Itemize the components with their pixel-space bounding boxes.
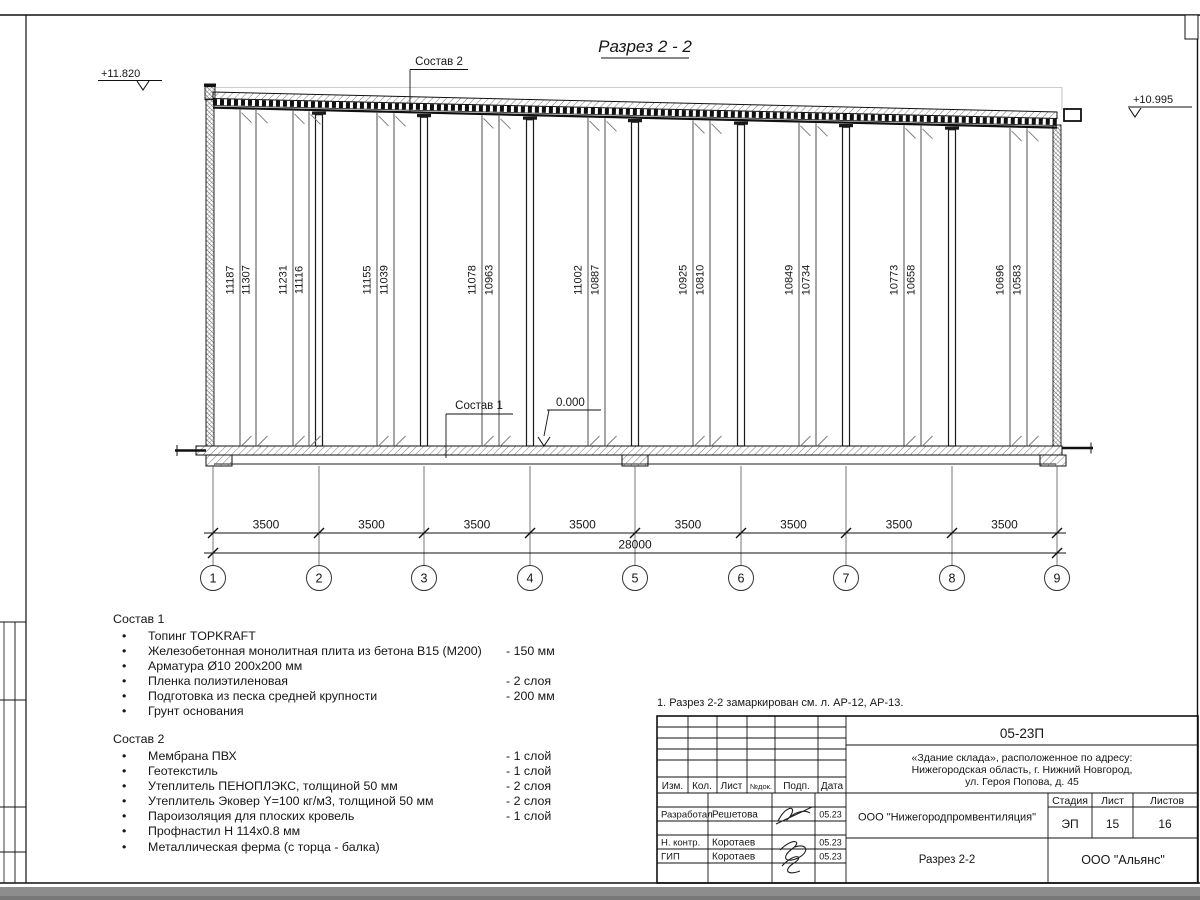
grid-label: 1 (210, 572, 217, 586)
list-item: •Железобетонная монолитная плита из бето… (113, 644, 593, 659)
sheets-label: Листов (1150, 795, 1185, 807)
rod-height-dim: 10810 (695, 265, 707, 296)
bay-dim-label: 3500 (675, 518, 702, 532)
list-item: •Грунт основания (113, 704, 593, 719)
brace-top (1029, 131, 1039, 141)
bullet-icon: • (122, 644, 126, 659)
brace-top (501, 119, 511, 129)
brace-bottom (695, 436, 705, 446)
bullet-icon: • (122, 764, 126, 779)
bullet-icon: • (122, 749, 126, 764)
rod-height-dim: 11307 (241, 265, 253, 295)
brace-top (242, 113, 252, 123)
item-text: Утеплитель ПЕНОПЛЭКС, толщиной 50 мм (148, 779, 398, 794)
item-text: Топинг TOPKRAFT (148, 629, 256, 644)
row-date: 05.23 (819, 838, 842, 848)
bullet-icon: • (122, 824, 126, 839)
elevation-value: +10.995 (1133, 94, 1173, 106)
foundation-pad (206, 455, 232, 466)
right-wall (1053, 125, 1061, 446)
item-text: Металлическая ферма (с торца - балка) (148, 840, 380, 855)
bullet-icon: • (122, 689, 126, 704)
brace-top (590, 121, 600, 131)
bay-dim-label: 3500 (464, 518, 491, 532)
list-item: •Топинг TOPKRAFT (113, 629, 593, 644)
grid-label: 4 (527, 572, 534, 586)
bullet-icon: • (122, 840, 126, 855)
brace-top (923, 129, 933, 139)
row-name: Коротаев (712, 852, 755, 863)
rod-height-dim: 11039 (379, 265, 391, 295)
list-item: •Утеплитель Эковер Y=100 кг/м3, толщиной… (113, 794, 593, 809)
row-date: 05.23 (819, 852, 842, 862)
stage-value: ЭП (1061, 817, 1078, 831)
signature-icon (780, 842, 806, 873)
item-text: Грунт основания (148, 704, 244, 719)
col-data: Дата (821, 781, 844, 792)
drawing-sheet: Разрез 2 - 2 111871130711231111161115511… (0, 0, 1200, 900)
brace-top (695, 123, 705, 133)
bay-dim-label: 3500 (358, 518, 385, 532)
item-value: - 1 слой (506, 809, 551, 824)
brace-bottom (590, 436, 600, 446)
col-ndok: №док. (750, 782, 772, 791)
bullet-icon: • (122, 809, 126, 824)
list-item: •Мембрана ПВХ- 1 слой (113, 749, 593, 764)
item-value: - 150 мм (506, 644, 555, 659)
rod-height-dim: 11155 (362, 266, 374, 295)
brace-bottom (484, 436, 494, 446)
generated-structure: 1118711307112311111611155110391107810963… (201, 110, 1070, 591)
item-text: Подготовка из песка средней крупности (148, 689, 377, 704)
elevation-arrow-icon (538, 437, 550, 446)
total-dim-label: 28000 (618, 538, 652, 552)
sheet-label: Лист (1101, 795, 1124, 807)
brace-bottom (607, 436, 617, 446)
rod-height-dim: 11116 (294, 266, 306, 294)
list-item: •Арматура Ø10 200х200 мм (113, 659, 593, 674)
brace-top (906, 128, 916, 138)
brace-top (295, 114, 305, 124)
row-role: Н. контр. (661, 838, 700, 849)
view-title: Разрез 2 - 2 (598, 37, 692, 56)
brace-bottom (712, 436, 722, 446)
rod-height-dim: 10773 (889, 265, 901, 296)
brace-top (801, 126, 811, 136)
floor-slab (196, 446, 1062, 455)
grid-label: 3 (421, 572, 428, 586)
rod-height-dim: 10696 (995, 265, 1007, 296)
rod-height-dim: 10734 (801, 265, 813, 296)
bullet-icon: • (122, 674, 126, 689)
bullet-icon: • (122, 794, 126, 809)
brace-top (396, 116, 406, 126)
roof-composition-list: Состав 2 •Мембрана ПВХ- 1 слой •Геотекст… (113, 731, 593, 855)
col-podp: Подп. (783, 781, 810, 792)
brace-bottom (396, 436, 406, 446)
bullet-icon: • (122, 629, 126, 644)
bullet-icon: • (122, 659, 126, 674)
stage-label: Стадия (1052, 795, 1088, 807)
left-wall (206, 99, 214, 446)
designer-company: ООО "Нижегородпромвентиляция" (858, 812, 1036, 824)
rod-height-dim: 10963 (484, 265, 496, 296)
list-item: •Утеплитель ПЕНОПЛЭКС, толщиной 50 мм- 2… (113, 779, 593, 794)
list-title: Состав 1 (113, 611, 593, 627)
elevation-value: +11.820 (101, 68, 140, 80)
grid-label: 8 (949, 572, 956, 586)
left-approval-strip (0, 622, 26, 883)
brace-bottom (923, 436, 933, 446)
grid-label: 5 (632, 572, 639, 586)
column (316, 115, 323, 446)
grid-label: 6 (738, 572, 745, 586)
item-value: - 2 слоя (506, 794, 551, 809)
elevation-arrow-icon (1129, 108, 1141, 117)
row-name: Решетова (712, 810, 758, 821)
roof-edge-box (1064, 109, 1081, 121)
item-text: Пленка полиэтиленовая (148, 674, 288, 689)
item-text: Геотекстиль (148, 764, 218, 779)
row-date: 05.23 (819, 810, 842, 820)
col-list: Лист (721, 781, 743, 792)
leader-label: Состав 2 (415, 56, 463, 68)
column (949, 130, 956, 446)
list-item: •Профнастил Н 114х0.8 мм (113, 824, 593, 839)
brace-top (484, 118, 494, 128)
brace-top (818, 126, 828, 136)
object-line: «Здание склада», расположенное по адресу… (912, 752, 1133, 764)
list-item: •Подготовка из песка средней крупности- … (113, 689, 593, 704)
item-text: Профнастил Н 114х0.8 мм (148, 824, 300, 839)
bay-dim-label: 3500 (569, 518, 596, 532)
object-line: ул. Героя Попова, д. 45 (965, 776, 1079, 788)
client-company: ООО "Альянс" (1081, 853, 1165, 867)
view-name: Разрез 2-2 (919, 854, 975, 866)
brace-bottom (818, 436, 828, 446)
brace-bottom (379, 436, 389, 446)
rod-height-dim: 10583 (1012, 265, 1024, 296)
bullet-icon: • (122, 704, 126, 719)
brace-bottom (1012, 436, 1022, 446)
brace-bottom (242, 436, 252, 446)
item-text: Утеплитель Эковер Y=100 кг/м3, толщиной … (148, 794, 433, 809)
rod-height-dim: 10658 (906, 265, 918, 296)
item-text: Железобетонная монолитная плита из бетон… (148, 644, 482, 659)
elevation-mark-right: +10.995 (1128, 94, 1192, 117)
column (421, 117, 428, 446)
foundation-pad (1040, 455, 1066, 466)
row-role: ГИП (661, 852, 680, 863)
leader-label: Состав 1 (455, 400, 503, 412)
rod-height-dim: 11187 (225, 266, 237, 295)
rod-height-dim: 10849 (784, 265, 796, 296)
brace-top (379, 116, 389, 126)
rod-height-dim: 11002 (573, 265, 585, 295)
list-item: •Пароизоляция для плоских кровель- 1 сло… (113, 809, 593, 824)
bay-dim-label: 3500 (991, 518, 1018, 532)
foundation-pad (622, 455, 648, 466)
brace-top (1012, 131, 1022, 141)
col-izm: Изм. (662, 781, 683, 792)
parapet-cap (204, 84, 216, 87)
column (843, 127, 850, 446)
list-item: •Металлическая ферма (с торца - балка) (113, 840, 593, 855)
screenshot-edge-band-dark (0, 896, 1200, 900)
sheet-number: 15 (1106, 817, 1120, 831)
item-value: - 2 слоя (506, 779, 551, 794)
item-text: Пароизоляция для плоских кровель (148, 809, 354, 824)
frame-corner-box (1185, 15, 1198, 39)
brace-top (258, 113, 268, 123)
list-item: •Геотекстиль- 1 слой (113, 764, 593, 779)
list-item: •Пленка полиэтиленовая- 2 слоя (113, 674, 593, 689)
level-value: 0.000 (556, 397, 585, 409)
brace-bottom (906, 436, 916, 446)
brace-bottom (295, 436, 305, 446)
rod-height-dim: 10925 (678, 265, 690, 296)
bay-dim-label: 3500 (886, 518, 913, 532)
column (632, 122, 639, 446)
bay-dim-label: 3500 (253, 518, 280, 532)
project-code: 05-23П (1000, 726, 1044, 741)
item-value: - 2 слоя (506, 674, 551, 689)
brace-bottom (1029, 436, 1039, 446)
object-line: Нижегородская область, г. Нижний Новгоро… (912, 764, 1133, 776)
brace-bottom (258, 436, 268, 446)
rod-height-dim: 10887 (590, 265, 602, 296)
rod-height-dim: 11231 (278, 265, 290, 295)
elevation-mark-left: +11.820 (98, 68, 162, 90)
sheet-note: 1. Разрез 2-2 замаркирован см. л. АР-12,… (657, 697, 903, 709)
brace-top (712, 124, 722, 134)
row-role: Разработал (661, 810, 713, 821)
list-title: Состав 2 (113, 731, 593, 747)
grid-label: 9 (1054, 572, 1061, 586)
bay-dim-label: 3500 (780, 518, 807, 532)
row-name: Коротаев (712, 838, 755, 849)
rod-height-dim: 11078 (467, 265, 479, 295)
sheets-total: 16 (1158, 817, 1172, 831)
column (738, 125, 745, 446)
grid-label: 2 (316, 572, 323, 586)
item-text: Мембрана ПВХ (148, 749, 237, 764)
elevation-arrow-icon (137, 81, 149, 90)
item-value: - 1 слой (506, 749, 551, 764)
column (527, 120, 534, 446)
brace-bottom (501, 436, 511, 446)
bullet-icon: • (122, 779, 126, 794)
grid-label: 7 (843, 572, 850, 586)
item-text: Арматура Ø10 200х200 мм (148, 659, 302, 674)
title-block: Изм. Кол. Лист №док. Подп. Дата Разработ… (657, 716, 1198, 883)
zero-level-mark: 0.000 (538, 397, 601, 446)
item-value: - 1 слой (506, 764, 551, 779)
col-kol: Кол. (692, 781, 712, 792)
brace-bottom (801, 436, 811, 446)
floor-composition-list: Состав 1 •Топинг TOPKRAFT •Железобетонна… (113, 611, 593, 720)
brace-top (607, 121, 617, 131)
item-value: - 200 мм (506, 689, 555, 704)
